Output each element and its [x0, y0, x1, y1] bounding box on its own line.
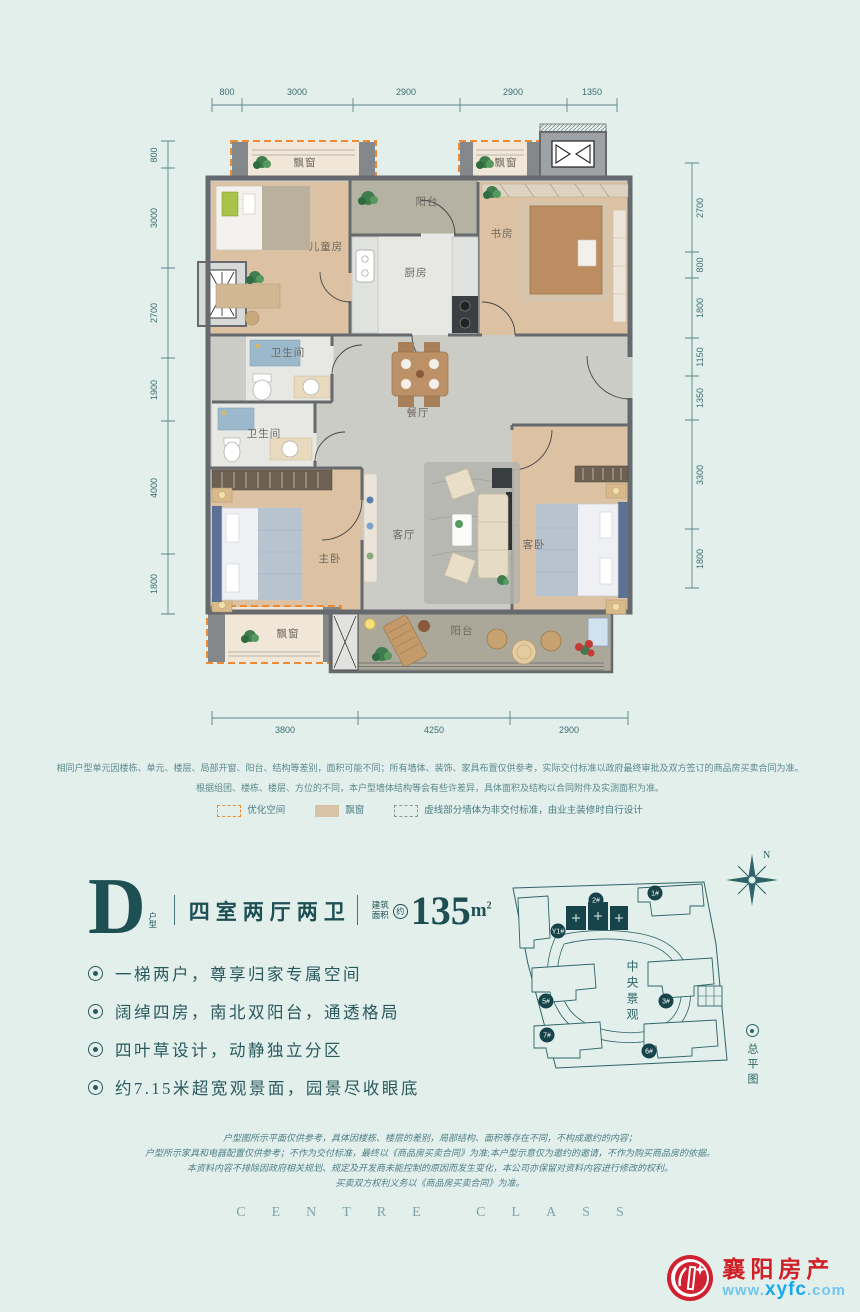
compass-icon: N [726, 850, 778, 906]
dim-label: 1150 [695, 347, 705, 366]
bay-window-bottom [207, 606, 341, 663]
dim-label: 2900 [559, 725, 579, 735]
site-plan: Y1# 2# 1# 5# 3# 7# 6# N [0, 760, 860, 1140]
dim-label: 3800 [275, 725, 295, 735]
dim-label: 1350 [695, 388, 705, 408]
dim-label: 3300 [695, 465, 705, 485]
dim-label: 2900 [503, 87, 523, 97]
bullet-circle-icon [746, 1024, 759, 1037]
elevator-block [540, 124, 606, 178]
compass-north-label: N [763, 850, 770, 861]
dim-label: 800 [219, 87, 234, 97]
dim-label: 1350 [582, 87, 602, 97]
master-wardrobe-icon [212, 470, 332, 490]
dim-label: 1900 [149, 380, 159, 400]
dim-label: 1800 [149, 574, 159, 594]
badge-1: 1# [651, 891, 659, 898]
kids-bed-icon [216, 186, 310, 250]
dim-ruler-top [212, 98, 617, 112]
badge-3: 3# [662, 999, 670, 1006]
stairs-icon-balcony [332, 614, 358, 670]
siteplan-caption: 总平图 [744, 1024, 760, 1088]
floor-plan: 800 3000 2900 2900 1350 800 3000 2700 19… [0, 0, 860, 760]
badge-2: 2# [592, 898, 600, 905]
room-label-study: 书房 [491, 227, 514, 240]
room-label-bay3: 飘窗 [277, 627, 300, 640]
room-label-kitchen: 厨房 [405, 266, 428, 279]
dim-ruler-left [161, 141, 175, 614]
dim-label: 2700 [695, 198, 705, 218]
room-label-dining: 餐厅 [407, 406, 430, 419]
footer-disclaimers: 户型图所示平面仅供参考，具体因楼栋、楼层的差别，局部结构、面积等存在不同，不构成… [0, 1131, 860, 1191]
dim-ruler-bottom [212, 711, 628, 725]
badge-y1: Y1# [552, 929, 565, 936]
badge-5: 5# [542, 999, 550, 1006]
dim-label: 4000 [149, 478, 159, 498]
room-label-kids: 儿童房 [309, 240, 344, 253]
dim-label: 1800 [695, 549, 705, 569]
elevator-icon [552, 141, 594, 167]
logo-emblem-icon [666, 1254, 714, 1302]
disclaimer-line: 户型所示家具和电器配置仅供参考；不作为交付标准，最终以《商品房买卖合同》为准;本… [0, 1146, 860, 1161]
dim-label: 4250 [424, 725, 444, 735]
disclaimer-line: 户型图所示平面仅供参考，具体因楼栋、楼层的差别，局部结构、面积等存在不同，不构成… [0, 1131, 860, 1146]
badge-6: 6# [645, 1049, 653, 1056]
room-label-balcony-bottom: 阳台 [451, 624, 474, 637]
dim-label: 2700 [149, 303, 159, 323]
dim-ruler-right [685, 163, 699, 588]
room-label-master: 主卧 [319, 552, 342, 565]
room-label-balcony-top: 阳台 [416, 195, 439, 208]
room-label-bay2: 飘窗 [495, 156, 518, 169]
room-label-guest: 客卧 [523, 538, 546, 551]
dim-label: 800 [695, 257, 705, 272]
logo-name: 襄阳房产 [722, 1257, 846, 1281]
floorplan-page: 800 3000 2900 2900 1350 800 3000 2700 19… [0, 0, 860, 1312]
dim-label: 800 [149, 147, 159, 162]
room-label-bay1: 飘窗 [294, 156, 317, 169]
room-label-bath1: 卫生间 [271, 346, 306, 359]
dim-label: 3000 [149, 208, 159, 228]
disclaimer-line: 买卖双方权利义务以《商品房买卖合同》为准。 [0, 1176, 860, 1191]
dim-label: 3000 [287, 87, 307, 97]
logo-site-url: www.xyfc.com [722, 1281, 846, 1300]
dim-label: 2900 [396, 87, 416, 97]
badge-7: 7# [543, 1033, 551, 1040]
room-label-bath2: 卫生间 [247, 427, 282, 440]
disclaimer-line: 本资料内容不排除因政府相关规划、规定及开发商未能控制的原因而发生变化，本公司亦保… [0, 1161, 860, 1176]
site-logo: 襄阳房产 www.xyfc.com [666, 1254, 846, 1302]
dim-label: 1800 [695, 298, 705, 318]
room-label-living: 客厅 [393, 528, 416, 541]
site-center-label: 中央景观 [624, 960, 641, 1024]
brand-wordmark: CENTRE CLASS [0, 1205, 860, 1221]
